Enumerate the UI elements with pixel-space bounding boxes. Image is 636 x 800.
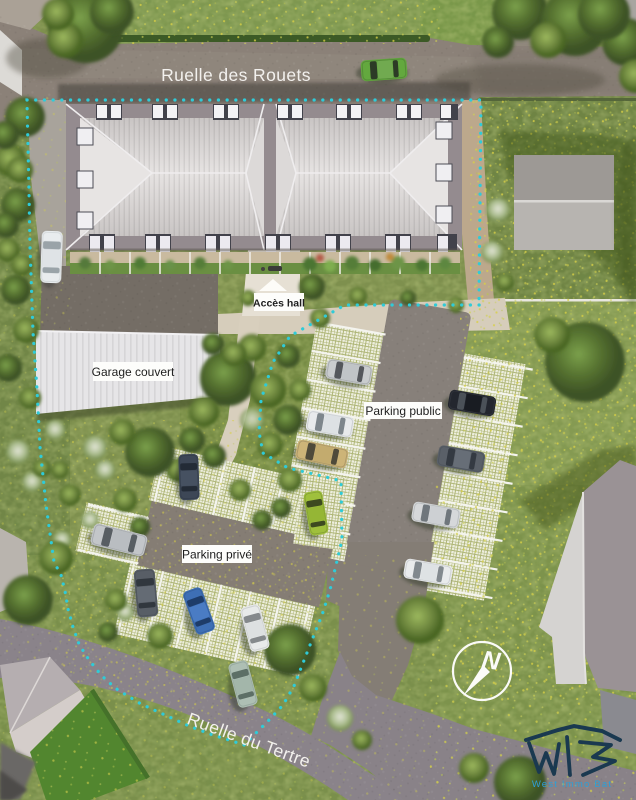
svg-text:Parking privé: Parking privé: [182, 548, 252, 562]
svg-text:Garage couvert: Garage couvert: [92, 365, 175, 379]
svg-text:Accès hall: Accès hall: [253, 298, 305, 310]
svg-text:West Immo Bat: West Immo Bat: [532, 779, 612, 790]
svg-text:Parking public: Parking public: [365, 404, 440, 418]
svg-text:Ruelle des Rouets: Ruelle des Rouets: [161, 65, 311, 85]
